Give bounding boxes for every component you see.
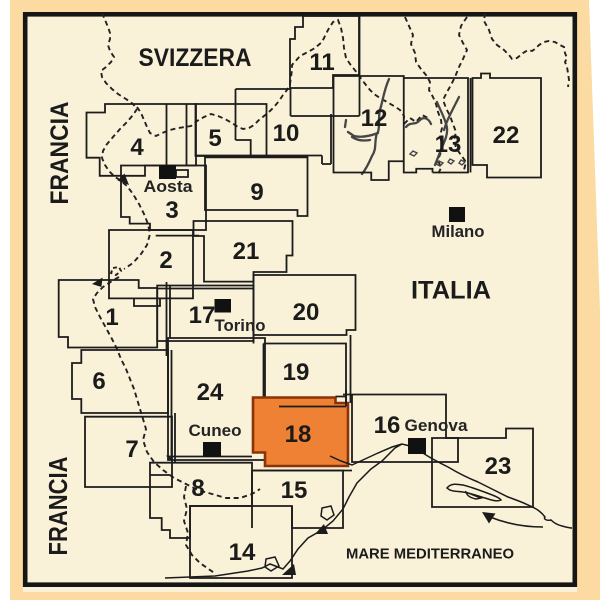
svg-text:FRANCIA: FRANCIA [43, 456, 73, 555]
svg-text:18: 18 [285, 421, 312, 448]
svg-text:FRANCIA: FRANCIA [46, 102, 74, 205]
svg-text:14: 14 [229, 539, 256, 566]
svg-text:12: 12 [361, 105, 388, 132]
svg-text:23: 23 [485, 453, 512, 480]
svg-text:9: 9 [250, 179, 263, 206]
svg-text:3: 3 [165, 197, 178, 224]
svg-text:ITALIA: ITALIA [411, 277, 491, 305]
svg-text:10: 10 [273, 120, 300, 147]
svg-text:Cuneo: Cuneo [189, 422, 242, 440]
svg-text:20: 20 [293, 299, 320, 326]
svg-text:8: 8 [191, 475, 204, 502]
svg-text:22: 22 [493, 122, 520, 149]
svg-text:19: 19 [283, 359, 310, 386]
svg-text:Milano: Milano [432, 223, 485, 241]
svg-text:5: 5 [208, 125, 221, 152]
svg-text:6: 6 [92, 368, 105, 395]
svg-text:17: 17 [189, 302, 216, 329]
svg-text:13: 13 [435, 131, 462, 158]
svg-text:24: 24 [197, 379, 224, 406]
svg-text:SVIZZERA: SVIZZERA [139, 44, 252, 72]
svg-text:4: 4 [130, 134, 144, 161]
svg-text:15: 15 [281, 477, 308, 504]
svg-text:1: 1 [105, 304, 118, 331]
svg-text:11: 11 [309, 49, 334, 76]
svg-text:Genova: Genova [405, 417, 469, 435]
svg-text:Torino: Torino [215, 317, 266, 335]
svg-text:2: 2 [159, 247, 172, 274]
svg-text:Aosta: Aosta [144, 178, 194, 196]
svg-text:21: 21 [233, 238, 260, 265]
svg-text:7: 7 [125, 436, 138, 463]
svg-text:MARE MEDITERRANEO: MARE MEDITERRANEO [346, 546, 514, 563]
svg-text:16: 16 [374, 412, 401, 439]
